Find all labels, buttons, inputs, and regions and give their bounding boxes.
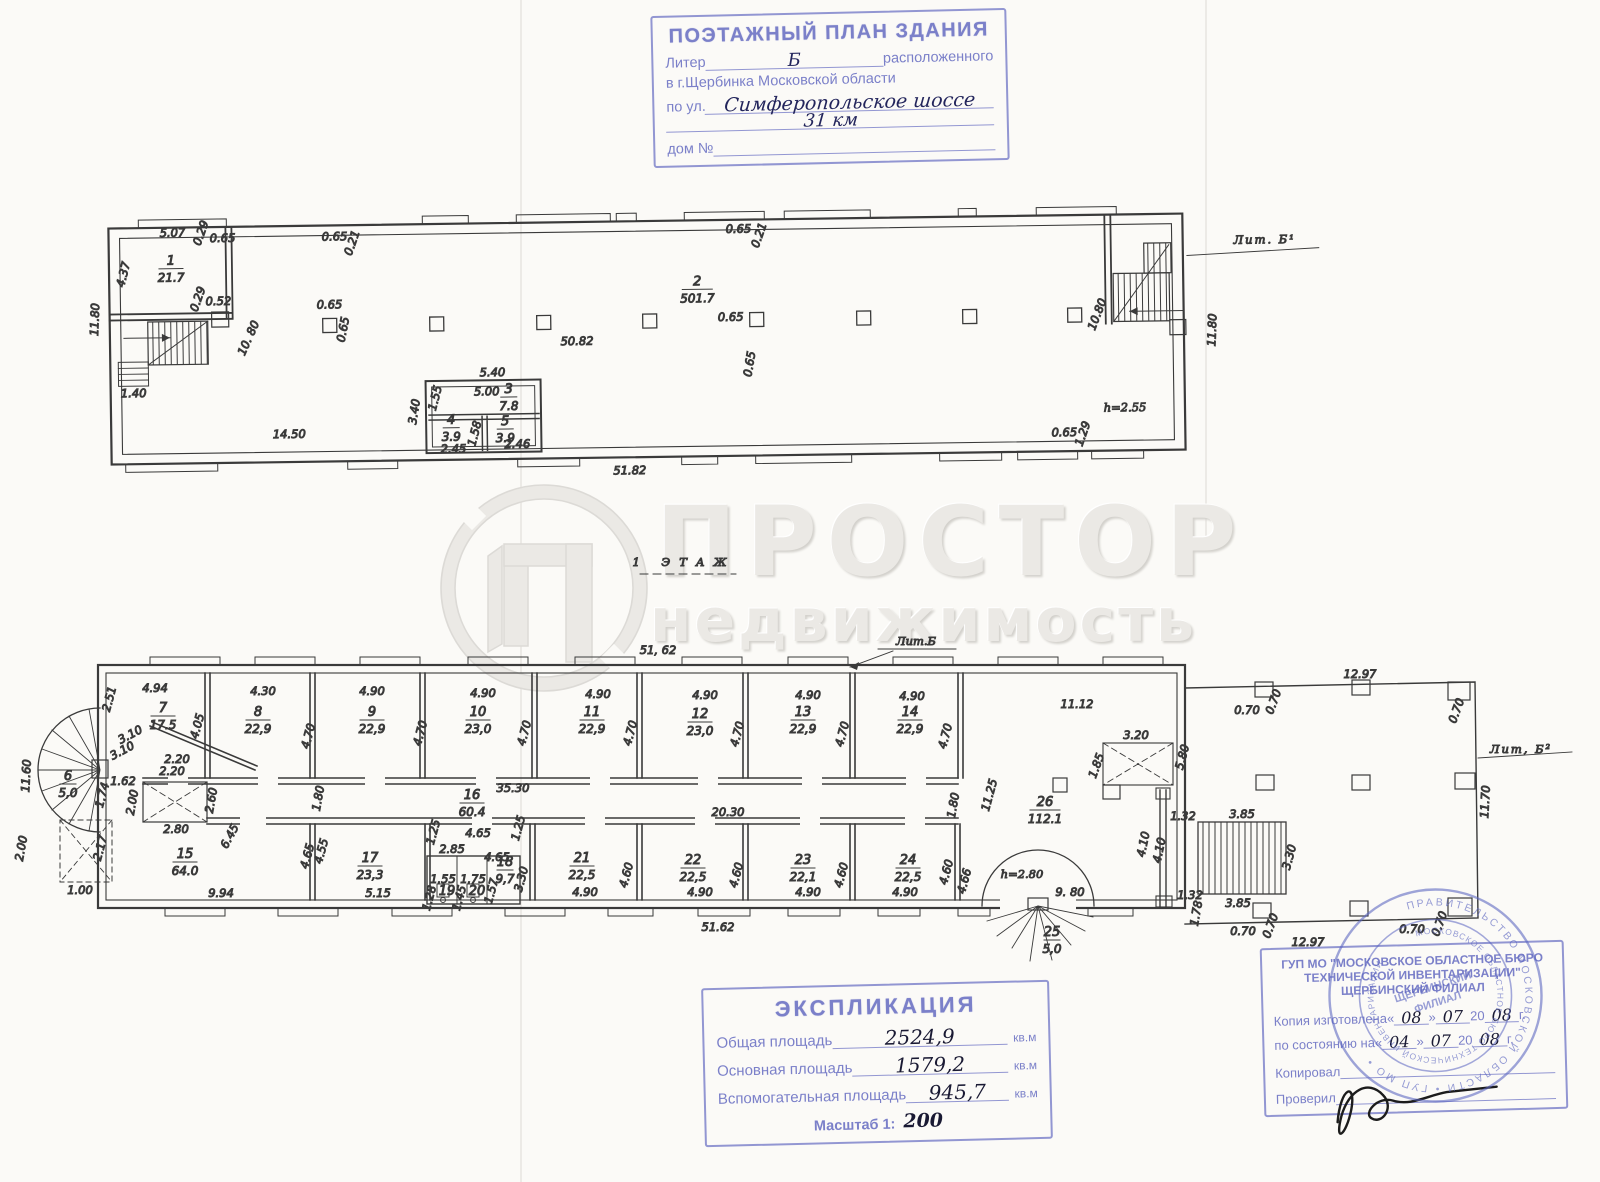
dimension-label: 9. 80 <box>1055 885 1084 899</box>
dimension-label: 2.85 <box>439 842 465 856</box>
scanned-floorplan-page: ПРОСТОР недвижимость <box>0 0 1600 1182</box>
room-number-4: 4 <box>447 413 455 428</box>
room-number-17: 17 <box>362 851 379 866</box>
dimension-label: 1.62 <box>110 774 136 788</box>
dimension-label: 1.85 <box>1085 751 1107 780</box>
room-number-10: 10 <box>470 705 487 720</box>
room-area-6: 5,0 <box>58 786 77 800</box>
room-area-1: 21.7 <box>158 270 185 284</box>
room-area-22: 22,5 <box>680 870 707 884</box>
svg-text:ПРАВИТЕЛЬСТВО МОСКОВСКОЙ ОБЛАС: ПРАВИТЕЛЬСТВО МОСКОВСКОЙ ОБЛАСТИ • ГУП М… <box>1320 871 1561 1118</box>
room-number-25: 25 <box>1044 925 1061 940</box>
room-area-8: 22,9 <box>245 722 272 736</box>
dimension-label: 4.90 <box>795 688 821 702</box>
dimension-label: 2.17 <box>90 833 110 862</box>
dimension-label: 4.90 <box>687 885 713 899</box>
dimension-label: 1.32 <box>1170 809 1196 823</box>
exp-row-label: Основная площадь <box>717 1060 853 1080</box>
room-area-9: 22,9 <box>359 722 386 736</box>
dimension-label: 0.70 <box>1234 703 1260 717</box>
dimension-label: 1.58 <box>464 419 484 447</box>
dimension-label: 4.70 <box>727 720 747 748</box>
house-value-line <box>713 133 995 156</box>
room-number-11: 11 <box>584 705 601 720</box>
liter-label: Литер <box>665 55 706 72</box>
floor-note: 1 ЭТАЖ <box>632 555 735 569</box>
room-area-23: 22,1 <box>790 870 817 884</box>
room-number-15: 15 <box>177 847 194 862</box>
dimension-label: 4.90 <box>795 885 821 899</box>
dimension-label: 0.29 <box>190 219 212 248</box>
dimension-label: 4.90 <box>899 689 925 703</box>
height-note-lower: h=2.80 <box>1001 867 1044 881</box>
room-area-7: 17.5 <box>150 718 177 732</box>
dimension-label: 4.70 <box>935 722 955 750</box>
exp-row-unit: кв.м <box>1014 1058 1038 1073</box>
lower-plan: 51, 624.944.304.904.904.904.904.904.9011… <box>12 555 1572 961</box>
dimension-label: 2.80 <box>163 822 189 836</box>
room-area-25: 5,0 <box>1042 942 1061 956</box>
dimension-label: 51.82 <box>613 463 646 477</box>
dimension-label: 4.37 <box>113 260 133 289</box>
dimension-label: 1.80 <box>944 791 962 819</box>
liter-label-lower-top: Лит.Б <box>895 634 937 648</box>
exp-row-value: 945,7 <box>906 1082 1009 1103</box>
dimension-label: 50.82 <box>560 334 593 348</box>
dimension-label: 0.70 <box>1230 924 1256 938</box>
room-number-6: 6 <box>64 769 72 784</box>
dimension-label: 4.90 <box>585 687 611 701</box>
room-number-2: 2 <box>693 274 701 289</box>
dimension-label: 2.60 <box>202 786 220 814</box>
room-number-26: 26 <box>1037 795 1054 810</box>
exp-row-unit: кв.м <box>1014 1086 1038 1101</box>
dimension-label: 1.00 <box>67 883 93 897</box>
header-stamp: ПОЭТАЖНЫЙ ПЛАН ЗДАНИЯ Литер Б расположен… <box>650 8 1009 168</box>
dimension-label: 4.70 <box>514 719 534 747</box>
exp-row-value: 2524,9 <box>832 1026 1007 1049</box>
dimension-label: 4.05 <box>187 712 207 740</box>
room-number-21: 21 <box>574 851 591 866</box>
scale-label: Масштаб 1: <box>814 1117 896 1135</box>
room-area-16: 60.4 <box>459 805 486 819</box>
dimension-label: 3.40 <box>405 398 423 426</box>
dimension-label: 4.55 <box>311 837 331 865</box>
upper-plan: 5.070.290.650.650.210.650.214.3711.800.5… <box>85 203 1321 485</box>
dimension-label: 4.90 <box>572 885 598 899</box>
dimension-label: 14.50 <box>273 427 306 441</box>
dimension-label: 11.80 <box>87 303 102 336</box>
room-area-18: 9,7 <box>495 872 514 886</box>
room-number-23: 23 <box>795 853 812 868</box>
room-number-19: 19 <box>439 884 456 899</box>
room-area-5: 3.9 <box>496 431 515 445</box>
dimension-label: 4.70 <box>832 720 852 748</box>
explication-stamp: ЭКСПЛИКАЦИЯ Общая площадь 2524,9 кв.м Ос… <box>701 980 1053 1147</box>
header-stamp-title: ПОЭТАЖНЫЙ ПЛАН ЗДАНИЯ <box>665 18 993 48</box>
room-number-16: 16 <box>464 788 481 803</box>
dimension-label: 4.70 <box>410 719 430 747</box>
dimension-label: 0.65 <box>740 350 758 378</box>
room-number-9: 9 <box>368 705 376 720</box>
dimension-label: 1.29 <box>1072 419 1094 448</box>
room-area-10: 23,0 <box>465 722 492 736</box>
dimension-label: 2.00 <box>123 788 141 816</box>
dimension-label: 4.30 <box>250 684 276 698</box>
dimension-label: 5.40 <box>480 365 506 379</box>
dimension-label: 4.60 <box>831 861 851 889</box>
dimension-label: 11.12 <box>1061 697 1094 711</box>
room-number-13: 13 <box>795 705 812 720</box>
dimension-label: 5.00 <box>474 384 500 398</box>
liter-label-lower-right: Лит, Б² <box>1489 742 1552 756</box>
room-number-1: 1 <box>167 254 175 269</box>
room-area-21: 22,5 <box>569 868 596 882</box>
city-line: в г.Щербинка Московской области <box>666 71 896 92</box>
dimension-label: 6.45 <box>217 822 241 851</box>
dimension-label: 51.62 <box>702 920 735 934</box>
dimension-label: 4.90 <box>359 684 385 698</box>
dimension-label: 11.25 <box>978 777 1000 812</box>
room-number-18: 18 <box>497 855 514 870</box>
dimension-label: 51, 62 <box>640 643 677 657</box>
room-area-26: 112.1 <box>1028 812 1062 826</box>
exp-row-value: 1579,2 <box>852 1054 1008 1077</box>
dimension-label: 11.80 <box>1204 313 1219 346</box>
dimension-label: 4.90 <box>892 885 918 899</box>
exp-row-label: Вспомогательная площадь <box>718 1086 907 1108</box>
exp-row-label: Общая площадь <box>716 1032 832 1052</box>
dimension-label: 12.97 <box>1344 667 1378 681</box>
dimension-label: 4.90 <box>470 686 496 700</box>
room-area-15: 64.0 <box>172 864 199 878</box>
dimension-label: 4.94 <box>142 681 168 695</box>
dimension-label: 11.70 <box>1477 785 1493 819</box>
room-area-2: 501.7 <box>680 291 715 305</box>
dimension-label: 1.40 <box>121 386 147 400</box>
room-area-3: 7.8 <box>499 399 519 413</box>
dimension-label: 3.85 <box>1225 896 1251 910</box>
dimension-label: 35.30 <box>497 781 530 795</box>
dimension-label: 0.65 <box>726 222 752 236</box>
dimension-label: 4.10 <box>1134 830 1153 858</box>
street-label: по ул. <box>666 99 706 116</box>
dimension-label: 4.60 <box>936 858 956 886</box>
room-number-12: 12 <box>692 707 709 722</box>
dimension-label: 10. 80 <box>234 318 262 357</box>
scale-value: 200 <box>903 1109 943 1132</box>
room-area-11: 22,9 <box>579 722 606 736</box>
dimension-label: 0.65 <box>317 297 343 311</box>
dimension-label: 4.65 <box>465 826 491 840</box>
dimension-label: 2.00 <box>12 834 30 862</box>
dimension-label: 1.80 <box>309 784 327 812</box>
seal-outer-text: ПРАВИТЕЛЬСТВО МОСКОВСКОЙ ОБЛАСТИ • ГУП М… <box>1320 871 1561 1118</box>
dimension-label: 0.70 <box>1259 911 1281 940</box>
room-number-24: 24 <box>900 853 917 868</box>
room-number-3: 3 <box>504 382 512 397</box>
dimension-label: 4.90 <box>692 688 718 702</box>
dimension-label: 2.20 <box>159 764 185 778</box>
room-area-17: 23,3 <box>357 868 384 882</box>
dimension-label: 1.32 <box>1177 888 1203 902</box>
dimension-label: 5.07 <box>160 225 186 239</box>
room-area-12: 23,0 <box>687 724 714 738</box>
lower-plan-rooms: 717.5822,9922,91023,01122,91223,01322,91… <box>58 701 1062 956</box>
room-number-7: 7 <box>159 701 168 716</box>
liter-value: Б <box>705 52 883 71</box>
dimension-label: 4.60 <box>616 861 636 889</box>
room-number-20: 20 <box>469 884 486 899</box>
house-label: дом № <box>667 141 713 158</box>
explication-title: ЭКСПЛИКАЦИЯ <box>715 990 1036 1024</box>
room-number-14: 14 <box>902 705 919 720</box>
room-area-4: 3.9 <box>442 430 461 444</box>
lower-plan-dimensions: 51, 624.944.304.904.904.904.904.904.9011… <box>12 555 1552 949</box>
dimension-label: 1.55 <box>425 384 445 412</box>
dimension-label: 3.10 <box>108 738 137 762</box>
room-area-14: 22,9 <box>897 722 924 736</box>
liter-label-upper: Лит. Б¹ <box>1232 232 1295 247</box>
upper-plan-dimensions: 5.070.290.650.650.210.650.214.3711.800.5… <box>85 203 1299 485</box>
dimension-label: 9.94 <box>208 886 234 900</box>
dimension-label: 5.15 <box>365 886 391 900</box>
dimension-label: 0.65 <box>718 310 744 324</box>
dimension-label: 0.65 <box>322 229 348 243</box>
room-area-24: 22,5 <box>895 870 922 884</box>
dimension-label: 4.66 <box>954 867 974 895</box>
exp-row-unit: кв.м <box>1013 1030 1037 1045</box>
dimension-label: 20.30 <box>712 805 745 819</box>
dimension-label: 5.80 <box>1172 743 1192 771</box>
dimension-label: 0.70 <box>1262 687 1284 716</box>
dimension-label: 0.65 <box>210 231 236 245</box>
room-number-8: 8 <box>254 705 262 720</box>
height-note-upper: h=2.55 <box>1104 400 1147 415</box>
dimension-label: 11.60 <box>18 759 34 793</box>
dimension-label: 1.74 <box>92 781 112 809</box>
room-number-22: 22 <box>685 853 702 868</box>
dimension-label: 3.85 <box>1229 807 1255 821</box>
dimension-label: 2.51 <box>99 685 119 713</box>
room-number-5: 5 <box>501 414 509 429</box>
dimension-label: 0.52 <box>206 294 232 308</box>
room-area-13: 22,9 <box>790 722 817 736</box>
located-text: расположенного <box>883 48 994 67</box>
dimension-label: 3.20 <box>1123 728 1149 742</box>
